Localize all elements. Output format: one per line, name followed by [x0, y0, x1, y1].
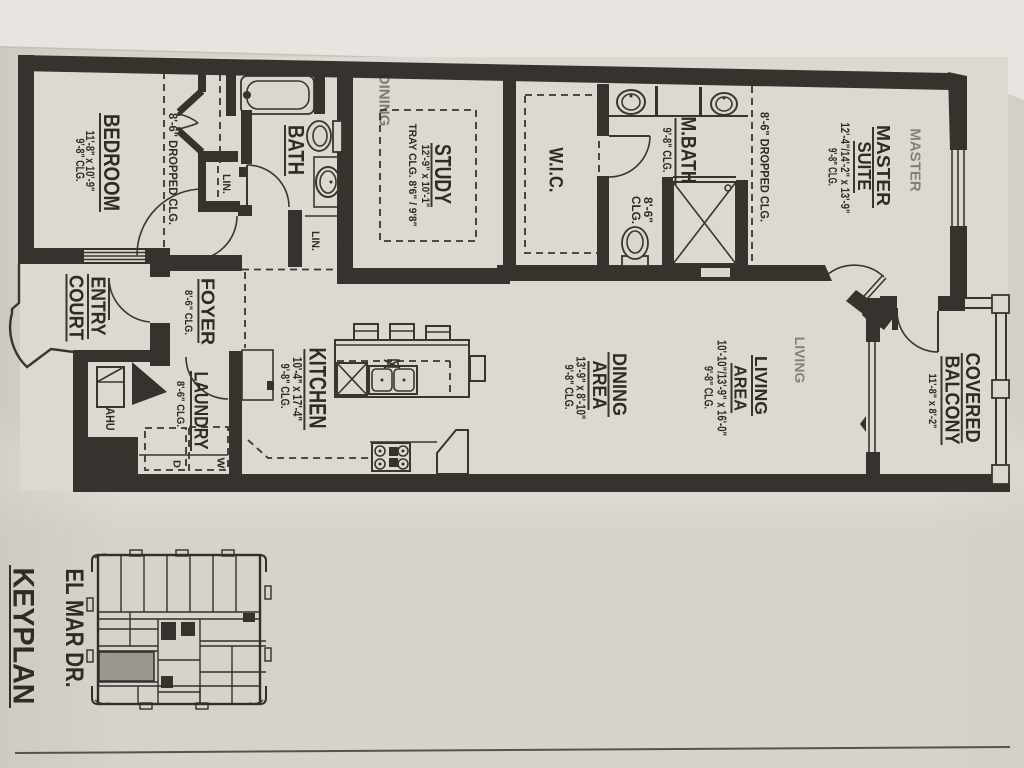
svg-text:DINING: DINING: [608, 353, 629, 416]
svg-text:9'-8" CLG.: 9'-8" CLG.: [73, 139, 87, 182]
svg-text:8'-6" CLG.: 8'-6" CLG.: [182, 290, 194, 335]
svg-text:LIN.: LIN.: [220, 174, 232, 194]
svg-text:11'-8" x 8'-2": 11'-8" x 8'-2": [926, 374, 938, 429]
svg-text:EL MAR DR.: EL MAR DR.: [60, 569, 88, 688]
svg-text:M.BATH: M.BATH: [677, 117, 700, 184]
svg-text:COURT: COURT: [65, 275, 87, 340]
svg-text:AHU: AHU: [103, 408, 117, 431]
svg-text:10'-10"/13'-9" x 16'-0": 10'-10"/13'-9" x 16'-0": [715, 340, 730, 436]
svg-text:AREA: AREA: [730, 365, 750, 411]
svg-text:DINING: DINING: [376, 74, 393, 127]
svg-text:MASTER: MASTER: [873, 125, 893, 206]
svg-text:TRAY CLG. 8'6" / 9'8": TRAY CLG. 8'6" / 9'8": [406, 124, 418, 227]
svg-text:9'-8" CLG.: 9'-8" CLG.: [562, 365, 576, 410]
svg-text:8'-6" DROPPED CLG.: 8'-6" DROPPED CLG.: [166, 113, 178, 225]
svg-text:8'-6" DROPPED CLG.: 8'-6" DROPPED CLG.: [758, 112, 770, 222]
svg-text:LAUNDRY: LAUNDRY: [190, 372, 211, 450]
svg-text:KITCHEN: KITCHEN: [304, 348, 331, 429]
svg-text:8'-6" CLG.: 8'-6" CLG.: [174, 381, 186, 427]
svg-text:D: D: [171, 460, 182, 468]
svg-text:9'-8" CLG.: 9'-8" CLG.: [826, 148, 840, 186]
svg-text:SUITE: SUITE: [854, 142, 874, 191]
svg-text:9'-8" CLG.: 9'-8" CLG.: [278, 364, 292, 409]
svg-text:KEYPLAN: KEYPLAN: [7, 568, 40, 705]
svg-text:9'-8" CLG.: 9'-8" CLG.: [660, 128, 674, 173]
svg-text:BEDROOM: BEDROOM: [99, 114, 124, 211]
svg-text:W: W: [215, 458, 226, 470]
svg-text:BATH: BATH: [284, 125, 309, 175]
svg-text:STUDY: STUDY: [430, 144, 456, 204]
svg-text:W.I.C.: W.I.C.: [545, 148, 566, 193]
svg-text:LIVING: LIVING: [751, 356, 771, 415]
svg-text:9'-8" CLG.: 9'-8" CLG.: [702, 366, 716, 409]
svg-text:LIN.: LIN.: [309, 231, 321, 251]
svg-text:LIVING: LIVING: [792, 337, 808, 384]
svg-text:BALCONY: BALCONY: [941, 356, 963, 446]
svg-text:ENTRY: ENTRY: [87, 277, 109, 337]
svg-text:AREA: AREA: [588, 361, 609, 410]
svg-text:COVERED: COVERED: [961, 353, 983, 443]
svg-text:FOYER: FOYER: [198, 278, 219, 345]
svg-text:12'-9" x 10'-1": 12'-9" x 10'-1": [419, 145, 431, 208]
svg-text:MASTER: MASTER: [907, 128, 924, 192]
svg-text:CLG.: CLG.: [629, 196, 643, 224]
